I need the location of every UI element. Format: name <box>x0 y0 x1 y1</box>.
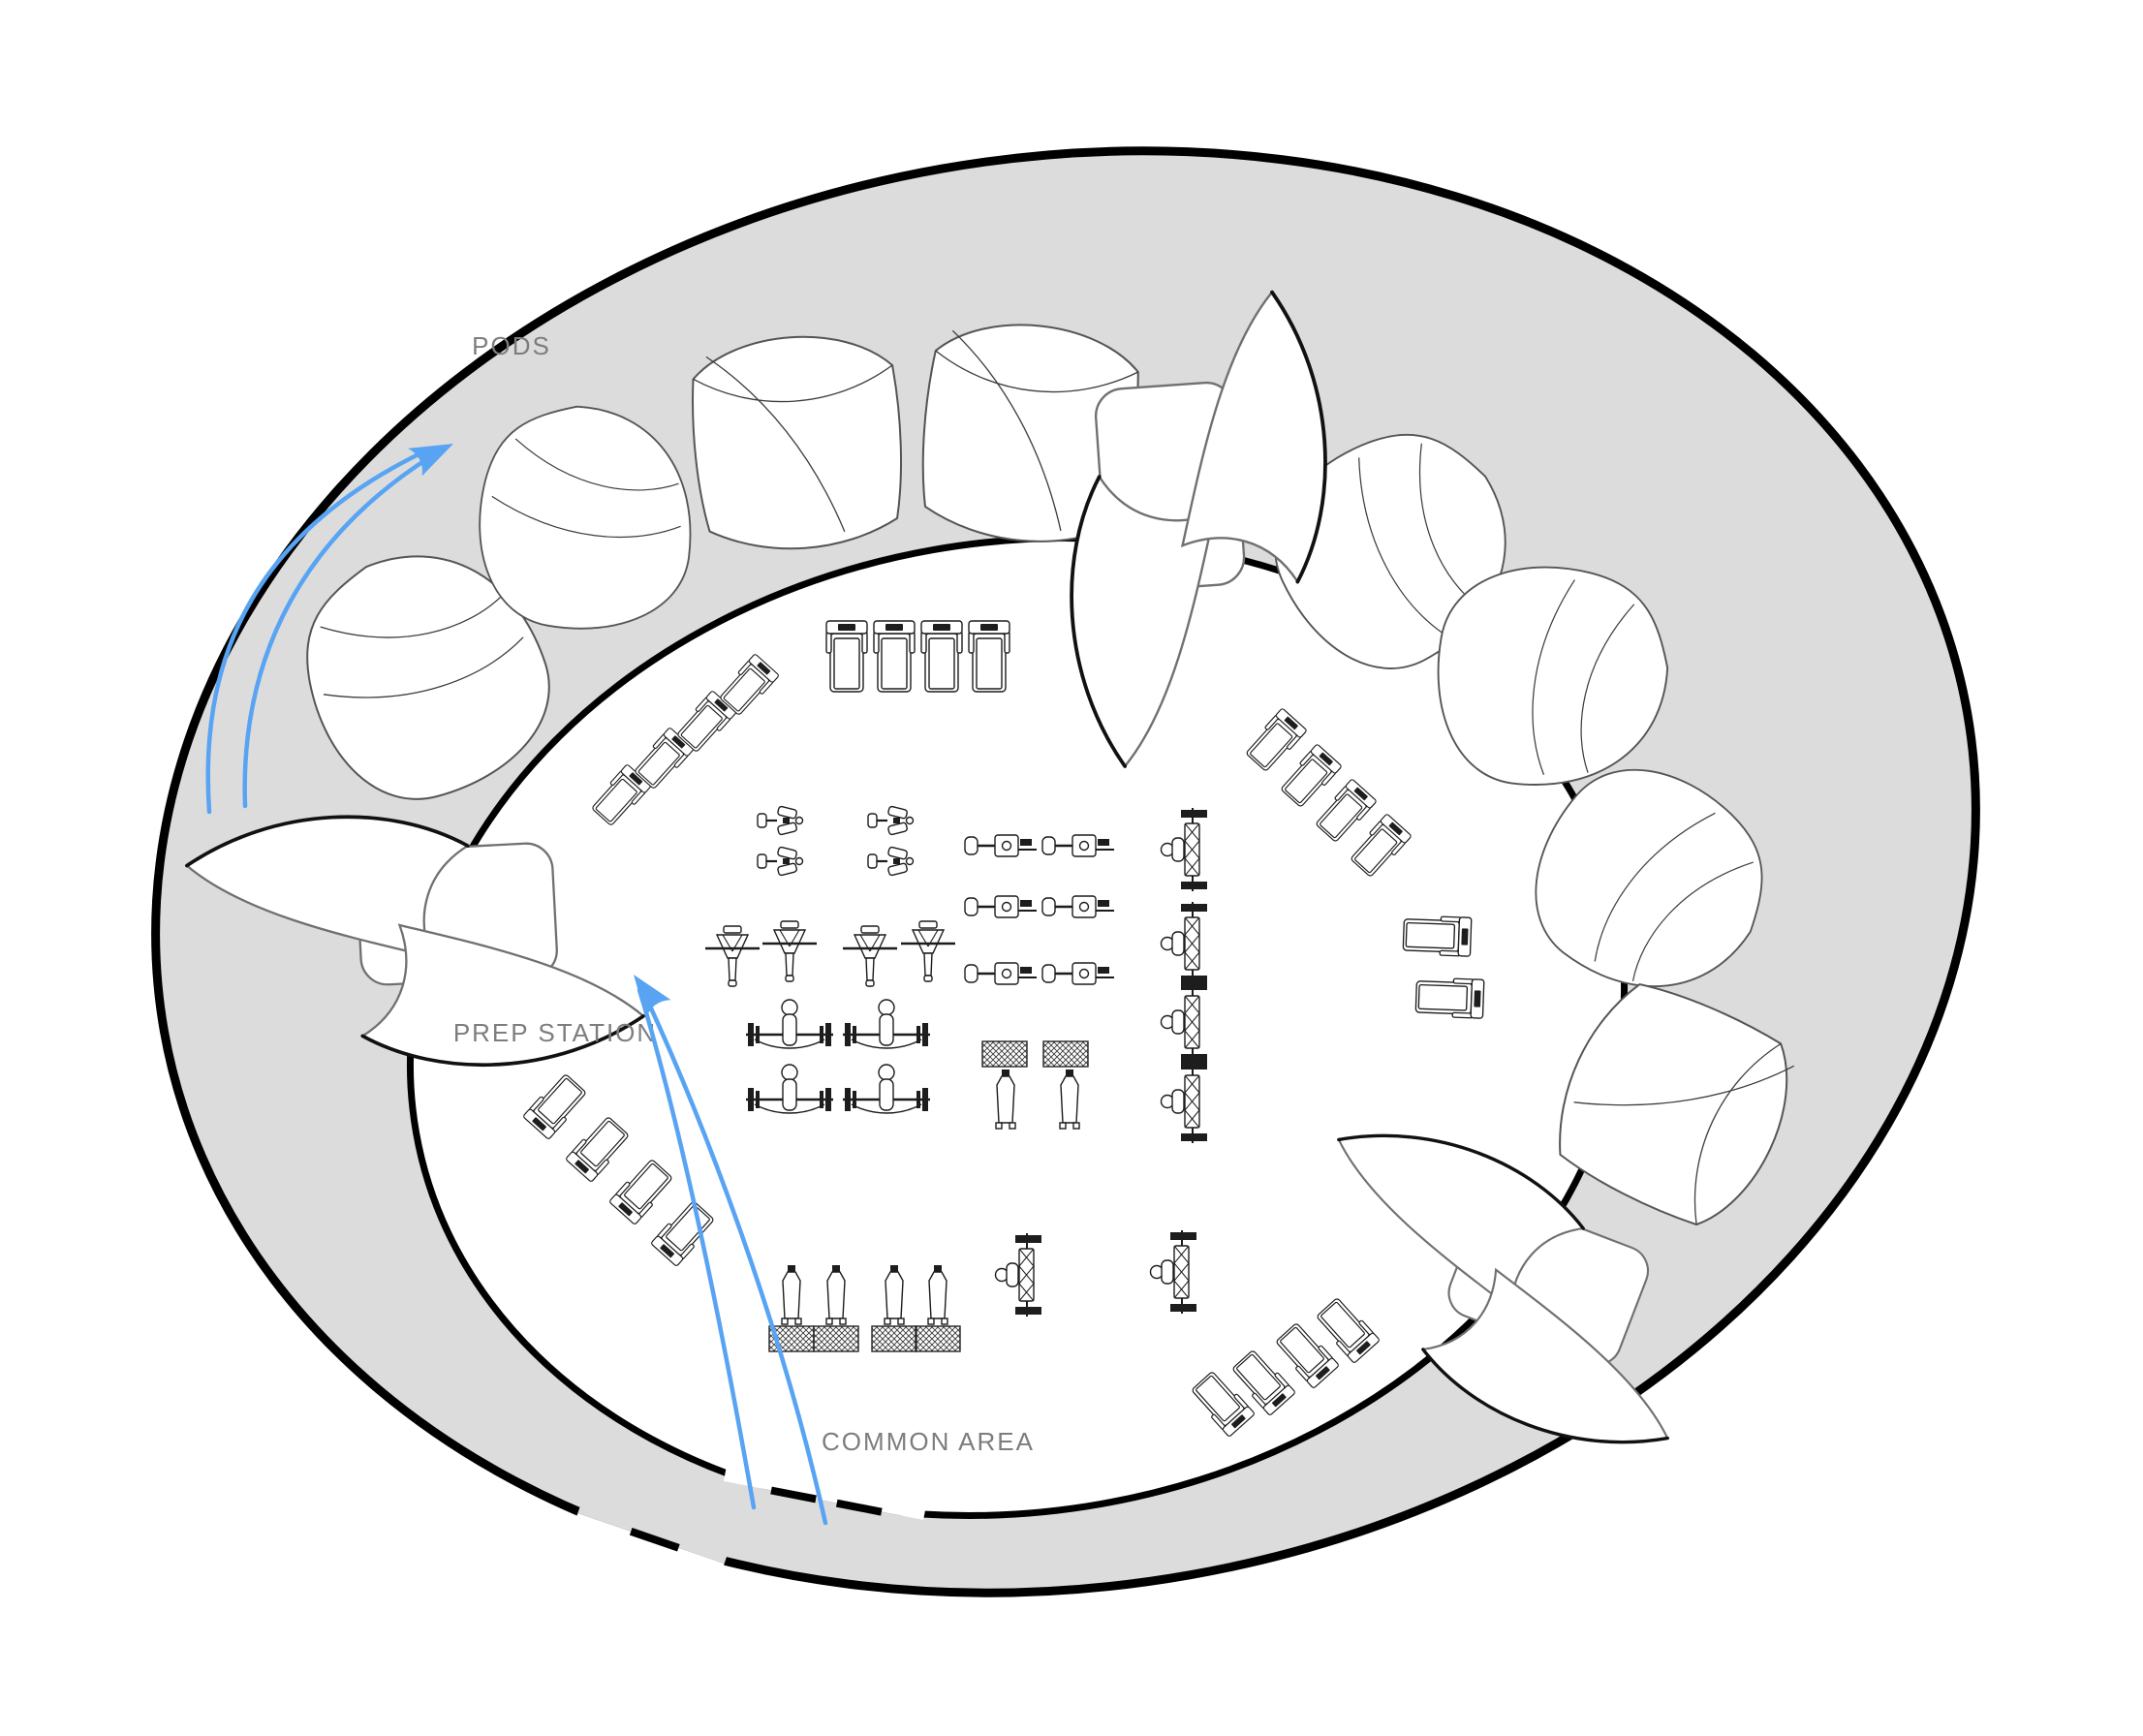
floor-plan-page: PODS PREP STATION COMMON AREA <box>0 0 2143 1736</box>
treadmill-icon <box>921 621 962 692</box>
weight-rack-icon <box>814 1326 858 1351</box>
weight-rack-icon <box>1043 1041 1088 1067</box>
treadmill-icon <box>874 621 915 692</box>
treadmill-icon <box>1415 977 1484 1018</box>
weight-rack-icon <box>982 1041 1027 1067</box>
weight-rack-icon <box>916 1326 960 1351</box>
pods-label: PODS <box>472 331 551 360</box>
pod-cylinder <box>688 330 908 555</box>
common-area-label: COMMON AREA <box>822 1427 1035 1456</box>
treadmill-icon <box>1403 915 1472 956</box>
prep-station-label: PREP STATION <box>453 1018 657 1047</box>
weight-rack-icon <box>872 1326 916 1351</box>
floor-plan-diagram: PODS PREP STATION COMMON AREA <box>0 0 2143 1736</box>
treadmill-icon <box>826 621 867 692</box>
treadmill-icon <box>969 621 1009 692</box>
